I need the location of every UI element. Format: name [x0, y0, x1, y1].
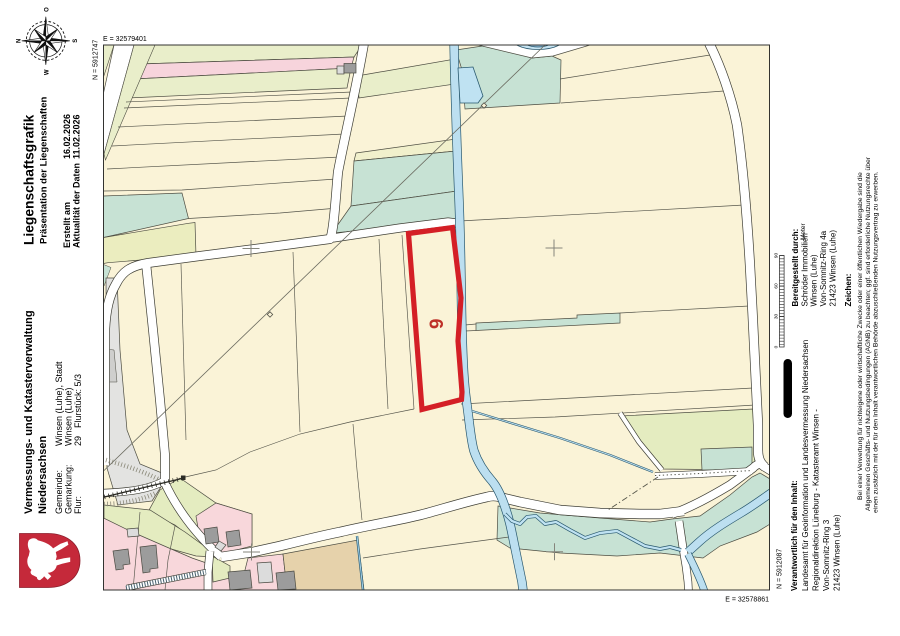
- svg-text:Erstellt am: Erstellt am: [62, 202, 72, 248]
- svg-text:Liegenschaftsgrafik: Liegenschaftsgrafik: [22, 114, 37, 245]
- svg-text:6: 6: [425, 319, 446, 330]
- svg-text:Zeichen:: Zeichen:: [844, 274, 853, 307]
- svg-text:21423 Winsen (Luhe): 21423 Winsen (Luhe): [833, 514, 842, 591]
- svg-text:Regionaldirektion Lüneburg - K: Regionaldirektion Lüneburg - Katasteramt…: [812, 409, 821, 591]
- svg-text:11.02.2026: 11.02.2026: [72, 114, 82, 159]
- svg-text:Allgemeinen Geschäfts- und Nut: Allgemeinen Geschäfts- und Nutzungsbedin…: [865, 156, 872, 511]
- svg-text:W: W: [45, 69, 51, 75]
- svg-text:16.02.2026: 16.02.2026: [62, 114, 72, 159]
- svg-text:Flurstück: 5/3: Flurstück: 5/3: [73, 374, 83, 428]
- svg-text:N = 5912747: N = 5912747: [93, 40, 100, 80]
- svg-text:einen zusätzlich mit der für d: einen zusätzlich mit der für den Inhalt …: [873, 171, 880, 513]
- svg-text:E = 32578861: E = 32578861: [725, 597, 769, 604]
- svg-text:29: 29: [73, 436, 83, 446]
- svg-text:21423 Winsen (Luhe): 21423 Winsen (Luhe): [829, 230, 838, 307]
- svg-text:Flur:: Flur:: [73, 496, 83, 514]
- svg-text:S: S: [73, 39, 79, 43]
- svg-text:Präsentation der Liegenschafte: Präsentation der Liegenschaften: [39, 97, 50, 244]
- svg-text:60: 60: [774, 283, 780, 289]
- svg-text:Von-Somnitz-Ring 3: Von-Somnitz-Ring 3: [822, 519, 831, 591]
- svg-text:N: N: [16, 39, 22, 43]
- svg-text:O: O: [45, 7, 51, 12]
- svg-text:N = 5912087: N = 5912087: [777, 549, 784, 589]
- svg-text:Winsen (Luhe): Winsen (Luhe): [64, 387, 74, 446]
- svg-text:30: 30: [774, 314, 780, 320]
- svg-text:E = 32579401: E = 32579401: [103, 36, 147, 43]
- svg-text:Bei einer Verwertung für nicht: Bei einer Verwertung für nichteigene ode…: [857, 172, 864, 500]
- svg-text:Winsen (Luhe): Winsen (Luhe): [810, 254, 819, 306]
- svg-text:Aktualität der Daten: Aktualität der Daten: [72, 163, 82, 248]
- svg-text:Landesamt für Geoinformation u: Landesamt für Geoinformation und Landesv…: [801, 340, 810, 591]
- svg-text:Schröder Immobilien: Schröder Immobilien: [801, 233, 810, 306]
- svg-text:Gemeinde:: Gemeinde:: [54, 470, 64, 514]
- svg-text:Niedersachsen: Niedersachsen: [37, 435, 49, 514]
- svg-text:90: 90: [774, 253, 780, 259]
- svg-text:Vermessungs- und Katasterverwa: Vermessungs- und Katasterverwaltung: [23, 310, 35, 514]
- svg-text:Von-Somnitz-Ring 4a: Von-Somnitz-Ring 4a: [819, 230, 828, 306]
- svg-text:0: 0: [774, 345, 780, 348]
- svg-text:Gemarkung:: Gemarkung:: [64, 464, 74, 514]
- svg-text:Winsen (Luhe), Stadt: Winsen (Luhe), Stadt: [54, 361, 64, 446]
- svg-text:Bereitgestellt durch:: Bereitgestellt durch:: [791, 229, 800, 307]
- svg-text:Verantwortlich für den Inhalt:: Verantwortlich für den Inhalt:: [790, 480, 799, 591]
